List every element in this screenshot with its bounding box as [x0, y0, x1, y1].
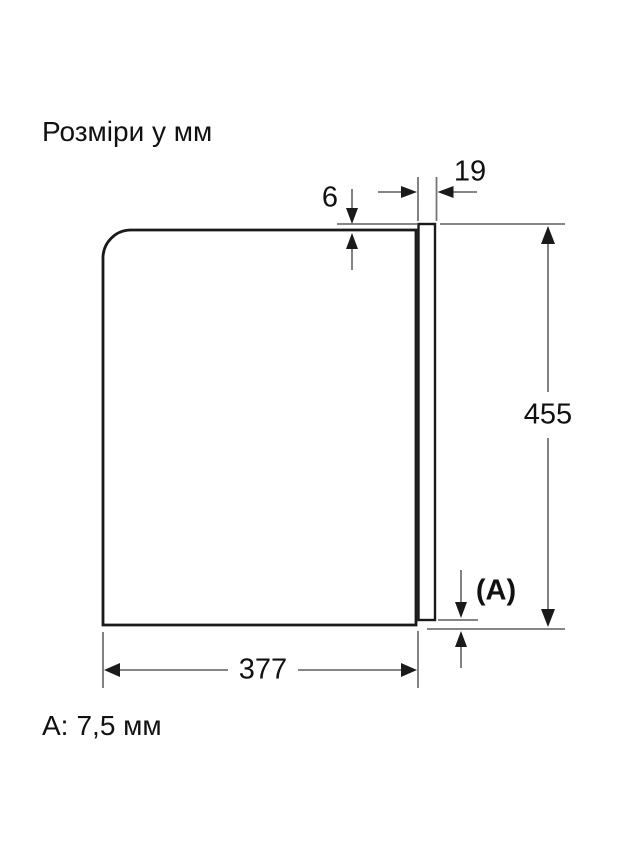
- dimension-label-depth: 377: [233, 654, 293, 687]
- arrow-377-left: [104, 663, 120, 677]
- extension-lines: [103, 177, 565, 688]
- arrow-19-left: [438, 186, 454, 198]
- arrow-377-right: [401, 663, 417, 677]
- arrow-A-up: [455, 631, 467, 647]
- dimension-diagram-page: Розміри у мм 6 19 455 (A) 377 A:7,5 мм: [0, 0, 621, 864]
- footnote: A:7,5 мм: [42, 712, 162, 740]
- arrow-6-up: [346, 233, 358, 249]
- footnote-key: A:: [42, 710, 68, 741]
- dimension-label-bottom-gap-ref: (A): [476, 577, 516, 606]
- appliance-body-outline: [103, 230, 416, 625]
- arrow-19-right: [401, 186, 417, 198]
- page-title: Розміри у мм: [42, 118, 212, 146]
- arrow-455-up: [541, 226, 555, 244]
- footnote-value: 7,5 мм: [76, 710, 161, 741]
- door-panel-rect: [419, 224, 436, 620]
- arrow-455-down: [541, 609, 555, 627]
- arrow-A-down: [455, 602, 467, 618]
- dimension-label-top-protrusion: 6: [322, 184, 338, 213]
- door-panel: [419, 224, 436, 620]
- dimension-label-height: 455: [522, 397, 574, 434]
- body-outline-path: [103, 230, 416, 625]
- arrow-6-down: [346, 208, 358, 224]
- dimension-label-door-thickness: 19: [454, 158, 486, 187]
